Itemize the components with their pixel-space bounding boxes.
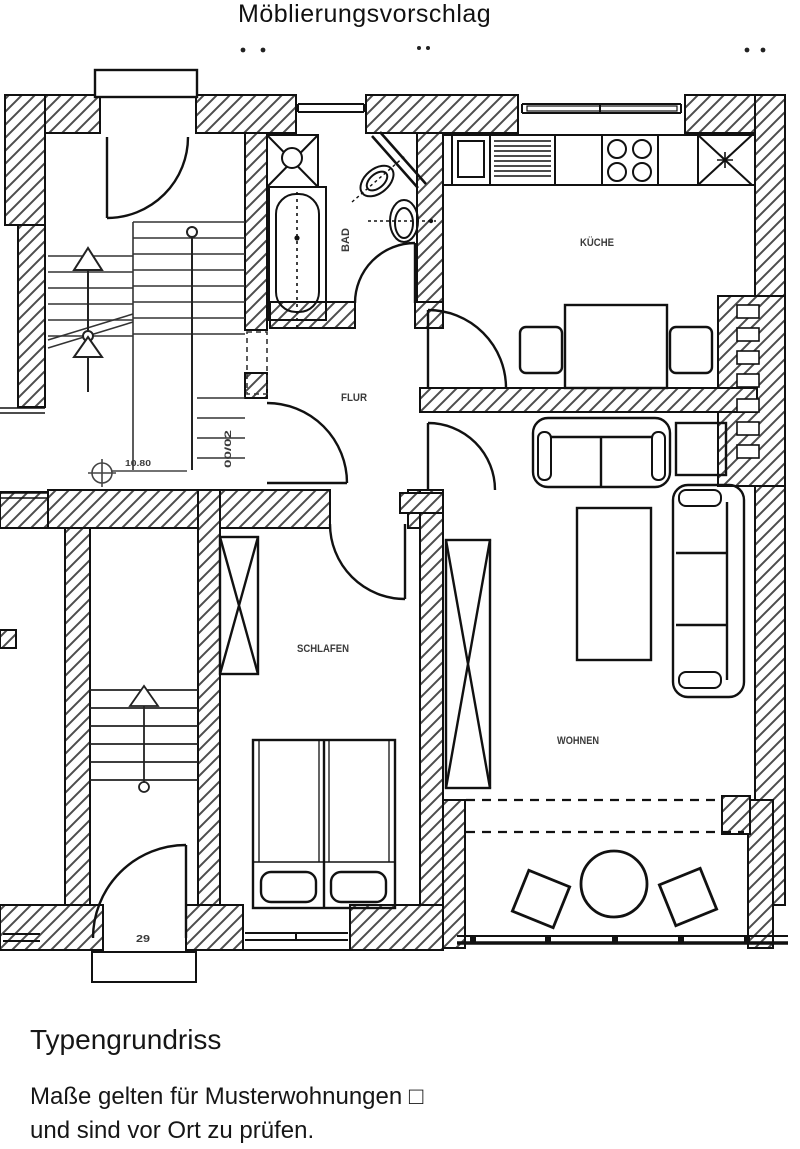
- living-label: WOHNEN: [557, 735, 599, 747]
- level-mark-label: 10.80: [125, 458, 151, 468]
- wall-left-stub: [0, 630, 16, 648]
- floor-plan-page: Möblierungsvorschlag: [0, 0, 800, 1149]
- bedroom-label: SCHLAFEN: [297, 643, 349, 655]
- bath-window: [298, 104, 364, 112]
- house-number-label: 29: [136, 934, 151, 945]
- wall-bottom-3: [350, 905, 443, 950]
- footer-note-line1: Maße gelten für Musterwohnungen □: [30, 1083, 423, 1111]
- kitchen-fixtures: [443, 135, 755, 388]
- reference-dots: [241, 46, 766, 52]
- balcony-chair-left: [512, 870, 569, 927]
- wall-bottom-2: [186, 905, 243, 950]
- bath-door: [355, 243, 415, 303]
- wall-right: [755, 95, 785, 905]
- footer-note-line2: und sind vor Ort zu prüfen.: [30, 1117, 314, 1145]
- sofa-long: [673, 485, 744, 697]
- wall-left-upper-1: [5, 95, 45, 225]
- balcony-pier-mid: [722, 796, 750, 834]
- shower: [267, 135, 318, 187]
- floor-plan: KÜCHE BAD FLUR SCHLAFEN WOHNEN 00/02 10.…: [0, 0, 800, 1000]
- sofa-two-seat: [533, 418, 670, 487]
- stairs-upper: [48, 222, 245, 487]
- walls: [0, 95, 785, 950]
- balcony-table: [581, 851, 647, 917]
- hall-label: FLUR: [341, 392, 367, 404]
- living-furniture: [533, 418, 744, 697]
- wall-bottom-1: [0, 905, 103, 950]
- kitchen-chair-right: [670, 327, 712, 373]
- wall-spine-lower: [420, 490, 443, 905]
- wall-left-upper-2: [18, 225, 45, 407]
- wall-bath-east: [417, 133, 443, 303]
- coffee-table: [577, 508, 651, 660]
- stair-direction-arrows: [74, 227, 197, 470]
- wardrobe-tall: [446, 540, 490, 788]
- double-bed: [253, 740, 395, 908]
- wall-bedroom-west: [198, 490, 220, 905]
- footer-heading: Typengrundriss: [30, 1024, 221, 1056]
- living-door: [428, 423, 495, 490]
- chimney-flues: [737, 305, 759, 458]
- stairwell-hall-door: [267, 403, 347, 483]
- stair-landing-window: [0, 408, 48, 498]
- entry-canopy: [95, 70, 197, 97]
- balcony-chair-right: [659, 868, 716, 925]
- bath-label: BAD: [340, 228, 352, 252]
- kitchen-chair-left: [520, 327, 562, 373]
- pillow-left: [261, 872, 316, 902]
- balcony-railing: [457, 935, 788, 943]
- house-entry-door: [93, 845, 186, 938]
- wall-left-lower: [65, 528, 90, 905]
- balcony-pier-right: [748, 800, 773, 948]
- balcony-pier-left: [443, 800, 465, 948]
- entry-steps: [92, 952, 196, 982]
- kitchen-label: KÜCHE: [580, 236, 614, 249]
- pillow-right: [331, 872, 386, 902]
- kitchen-table: [565, 305, 667, 388]
- bedroom-window: [245, 933, 348, 940]
- bedroom-door: [330, 524, 405, 599]
- wall-hall-south-1: [48, 490, 330, 528]
- kitchen-window: [522, 104, 681, 113]
- wardrobe-left: [220, 537, 258, 674]
- wall-spine-block: [400, 493, 443, 513]
- wall-top-2: [196, 95, 296, 133]
- apartment-entry-door: [95, 70, 197, 218]
- wall-top-3: [366, 95, 518, 133]
- wall-stair-east-1: [245, 133, 267, 330]
- wall-kitchen-living: [420, 388, 757, 412]
- unit-number-label: 00/02: [223, 430, 234, 468]
